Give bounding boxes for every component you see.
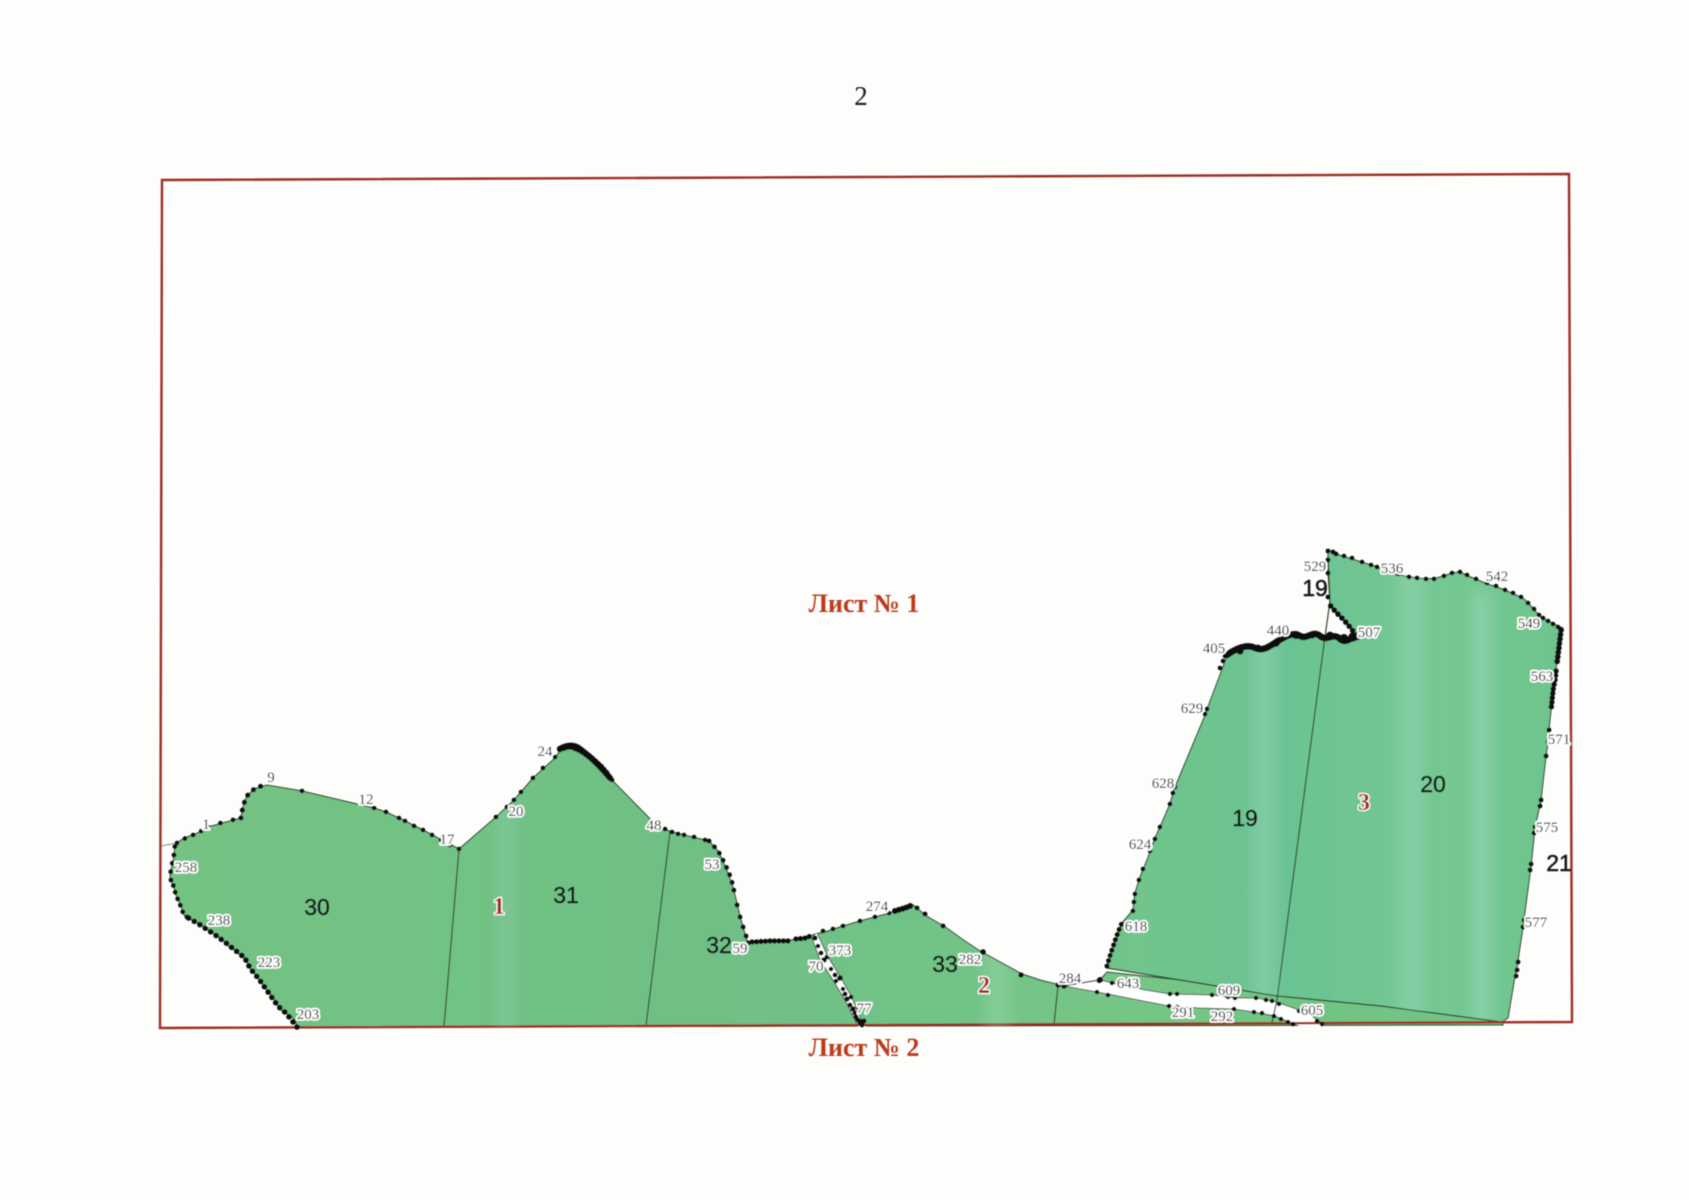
svg-text:2: 2 [854,81,868,111]
svg-text:282: 282 [959,952,982,968]
svg-text:17: 17 [440,832,456,848]
svg-text:405: 405 [1203,641,1226,657]
svg-text:571: 571 [1548,732,1571,748]
svg-text:563: 563 [1531,669,1554,685]
svg-text:258: 258 [175,860,198,876]
svg-text:628: 628 [1152,776,1175,792]
svg-text:53: 53 [705,857,720,873]
svg-text:203: 203 [297,1007,320,1023]
svg-text:19: 19 [1302,575,1328,601]
svg-text:507: 507 [1358,625,1381,641]
svg-text:21: 21 [1546,850,1572,876]
svg-text:549: 549 [1518,616,1541,632]
svg-text:Лист № 1: Лист № 1 [809,589,920,618]
svg-text:373: 373 [829,943,852,959]
svg-text:618: 618 [1125,919,1148,935]
svg-text:542: 542 [1486,569,1509,585]
svg-text:9: 9 [267,770,275,786]
svg-text:284: 284 [1059,971,1082,987]
svg-text:529: 529 [1304,559,1327,575]
svg-text:70: 70 [809,959,824,975]
svg-text:643: 643 [1117,976,1140,992]
svg-text:605: 605 [1301,1003,1324,1019]
svg-text:1: 1 [493,894,505,920]
svg-text:2: 2 [978,973,990,999]
svg-text:31: 31 [553,882,579,908]
svg-text:19: 19 [1232,805,1258,831]
svg-text:20: 20 [509,804,524,820]
svg-text:629: 629 [1181,701,1204,717]
svg-text:292: 292 [1211,1009,1234,1025]
svg-text:77: 77 [857,1001,873,1017]
svg-text:1: 1 [202,817,210,833]
svg-text:30: 30 [304,894,330,920]
svg-text:536: 536 [1381,561,1404,577]
svg-text:440: 440 [1267,623,1290,639]
svg-text:223: 223 [258,955,281,971]
svg-text:Лист № 2: Лист № 2 [809,1033,920,1062]
svg-text:32: 32 [706,932,732,958]
svg-text:33: 33 [932,951,958,977]
svg-text:59: 59 [733,941,748,957]
svg-text:48: 48 [647,818,662,834]
svg-text:12: 12 [359,792,374,808]
svg-text:3: 3 [1358,790,1370,816]
svg-text:577: 577 [1525,915,1548,931]
svg-text:238: 238 [208,913,231,929]
svg-text:24: 24 [538,744,554,760]
svg-text:624: 624 [1129,837,1152,853]
svg-text:274: 274 [866,899,889,915]
svg-text:291: 291 [1172,1005,1195,1021]
svg-text:20: 20 [1420,771,1446,797]
svg-text:609: 609 [1218,983,1241,999]
svg-text:575: 575 [1536,820,1559,836]
